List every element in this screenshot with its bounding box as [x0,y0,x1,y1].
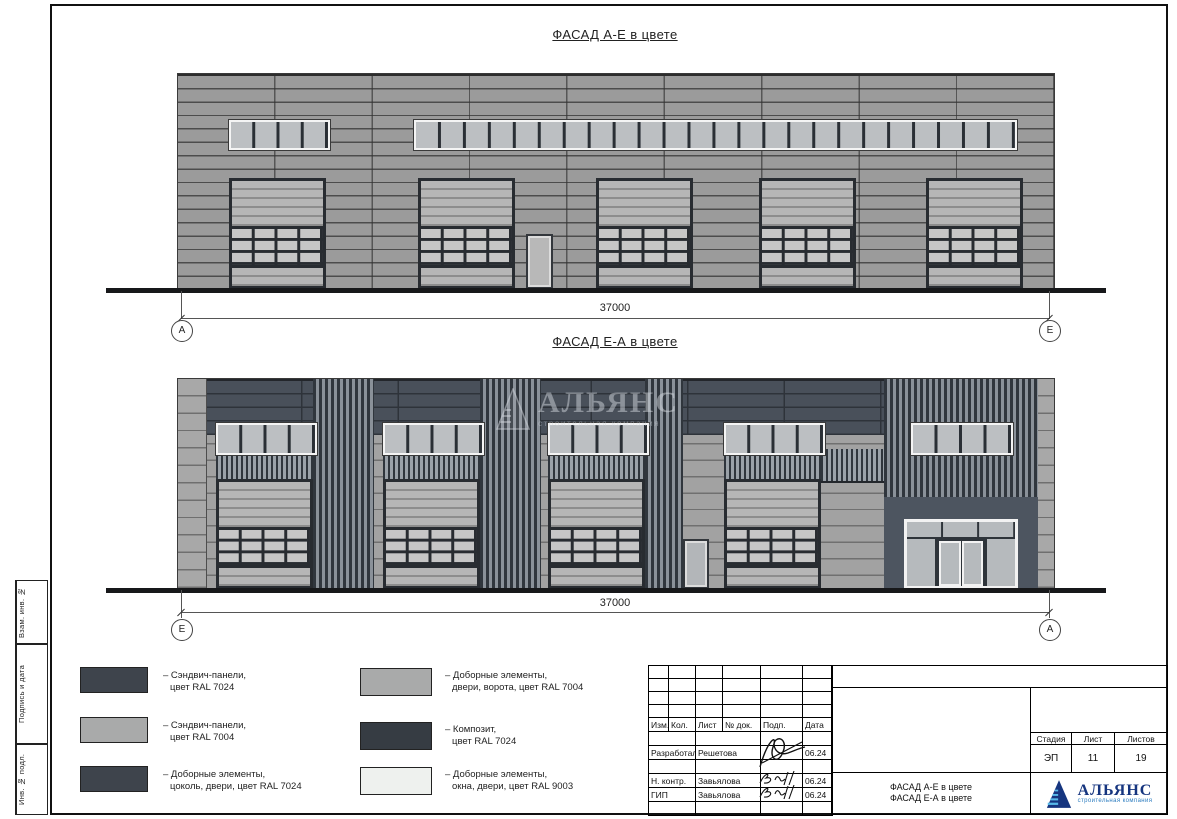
col-kol: Кол. [669,718,696,732]
slat-band [724,451,821,481]
gate-slats [727,482,818,527]
legend-swatch-ral7004 [360,668,432,696]
role-cell: Разработал [649,746,696,760]
main-entrance-surround [884,497,1038,589]
gate-glazing [929,226,1020,268]
window-band [548,423,649,455]
legend-text: цвет RAL 7024 [445,736,516,748]
gate-slats [219,482,310,527]
composite-fin-pylon [313,379,374,589]
legend-text: цвет RAL 7024 [163,682,246,694]
signature-cell [761,788,803,802]
dimension-line [181,318,1049,319]
slat-band [383,451,480,481]
sectional-gate [759,178,856,289]
doc-title-line1: ФАСАД А-Е в цвете [832,782,1030,793]
slat-band [821,449,884,483]
doc-designation-cell [831,687,1031,773]
dimension-line [181,612,1049,613]
legend-label: – Доборные элементы, цоколь, двери, цвет… [163,769,302,793]
side-label: Инв. № подл. [16,745,30,814]
ground-line [106,588,1106,593]
legend-swatch-composite-ral7024 [360,722,432,750]
axis-marker-e: Е [171,619,193,641]
company-logo-cell: АЛЬЯНС строительная компания [1030,772,1168,815]
elevation-bottom-title: ФАСАД Е-А в цвете [177,334,1053,349]
witness-line [181,291,182,319]
legend-label: – Сэндвич-панели, цвет RAL 7024 [163,670,246,694]
sectional-gate [724,479,821,589]
elevation-top-title: ФАСАД А-Е в цвете [177,27,1053,42]
col-ndok: № док. [723,718,761,732]
name-cell: Решетова [696,746,761,760]
window-band [383,423,484,455]
stage-empty-cell [1030,687,1168,733]
gate-slats [929,268,1020,286]
sheet-number-cell: 11 [1071,744,1115,773]
legend-text: цвет RAL 7004 [163,732,246,744]
legend-text: – Композит, [445,724,516,736]
date-cell: 06.24 [803,788,833,802]
legend-text: – Доборные элементы, [445,670,583,682]
side-label: Взам. инв. № [16,581,30,643]
gate-slats [386,482,477,527]
logo-tagline: строительная компания [1078,798,1153,804]
col-list: Лист [696,718,723,732]
doc-title: ФАСАД А-Е в цвете ФАСАД Е-А в цвете [832,782,1030,804]
col-izm: Изм. [649,718,669,732]
dimension-value: 37000 [540,302,690,314]
legend-text: – Доборные элементы, [445,769,573,781]
sectional-gate [216,479,313,589]
gate-slats [219,568,310,586]
door-leaf [962,541,984,586]
legend-text: окна, двери, цвет RAL 9003 [445,781,573,793]
facade-e-a-drawing [177,378,1055,590]
storefront-body [907,539,1015,586]
role-cell: Н. контр. [649,774,696,788]
titleblock-top-cell [831,665,1168,688]
title-block: Изм. Кол. Лист № док. Подп. Дата Разрабо… [648,665,1168,815]
legend-text: – Доборные элементы, [163,769,302,781]
gate-slats [727,568,818,586]
gate-slats [421,181,512,226]
gate-slats [762,268,853,286]
slat-band [548,451,645,481]
axis-marker-a: А [171,320,193,342]
side-cell-vzam-inv: Взам. инв. № [15,580,48,644]
gate-slats [599,181,690,226]
side-cell-inv-podl: Инв. № подл. [15,744,48,815]
sectional-gate [926,178,1023,289]
gate-glazing [727,527,818,568]
signature-cell [761,746,803,760]
legend-label: – Сэндвич-панели, цвет RAL 7004 [163,720,246,744]
witness-line [181,590,182,618]
legend-text: – Сэндвич-панели, [163,670,246,682]
entrance-door [683,539,709,589]
window-band [216,423,317,455]
legend-text: двери, ворота, цвет RAL 7004 [445,682,583,694]
legend-swatch-ral7004 [80,717,148,743]
side-label: Подпись и дата [16,645,30,743]
gate-glazing [551,527,642,568]
gate-glazing [421,226,512,268]
legend-text: – Сэндвич-панели, [163,720,246,732]
window-band [229,120,330,150]
legend-swatch-ral9003 [360,767,432,795]
sectional-gate [548,479,645,589]
ribbon-window-band [414,120,1017,150]
axis-marker-e: Е [1039,320,1061,342]
doc-title-line2: ФАСАД Е-А в цвете [832,793,1030,804]
gate-slats [232,181,323,226]
role-cell: ГИП [649,788,696,802]
storefront-sidelite [907,539,937,586]
dimension-value: 37000 [540,597,690,609]
legend-text: цоколь, двери, цвет RAL 7024 [163,781,302,793]
door-leaf [939,541,961,586]
window-band [911,423,1013,455]
double-entrance-door [937,539,985,586]
witness-line [1049,590,1050,618]
gate-slats [551,482,642,527]
legend-label: – Доборные элементы, двери, ворота, цвет… [445,670,583,694]
gate-slats [762,181,853,226]
gate-glazing [219,527,310,568]
witness-line [1049,291,1050,319]
sectional-gate [229,178,326,289]
date-cell: 06.24 [803,746,833,760]
gate-slats [929,181,1020,226]
pyramid-logo-icon [1046,779,1072,809]
ground-line [106,288,1106,293]
gate-slats [232,268,323,286]
gate-glazing [599,226,690,268]
gate-slats [599,268,690,286]
gate-glazing [386,527,477,568]
gate-slats [386,568,477,586]
facade-a-e-drawing [177,73,1055,290]
gate-glazing [762,226,853,268]
gate-slats [551,568,642,586]
side-cell-podpis-data: Подпись и дата [15,644,48,744]
gate-glazing [232,226,323,268]
signature-cell [761,774,803,788]
legend-swatch-ral7024 [80,766,148,792]
window-band [724,423,825,455]
name-cell: Завьялова [696,774,761,788]
logo-text: АЛЬЯНС строительная компания [1078,783,1153,804]
sheets-total-cell: 19 [1114,744,1168,773]
legend-swatch-ral7024 [80,667,148,693]
corner-panel-strip [1037,379,1054,589]
sectional-gate [596,178,693,289]
col-podp: Подп. [761,718,803,732]
sectional-gate [383,479,480,589]
corner-panel-strip [178,379,207,589]
composite-fin-pylon [480,379,541,589]
doc-title-cell: ФАСАД А-Е в цвете ФАСАД Е-А в цвете [831,772,1031,815]
date-cell: 06.24 [803,774,833,788]
storefront-glazing [904,519,1018,589]
storefront-transom [907,522,1015,539]
gate-slats [421,268,512,286]
composite-fin-pylon [645,379,683,589]
legend-label: – Доборные элементы, окна, двери, цвет R… [445,769,573,793]
entrance-door [526,234,553,289]
col-data: Дата [803,718,833,732]
logo-name: АЛЬЯНС [1078,783,1153,798]
axis-marker-a: А [1039,619,1061,641]
revision-table: Изм. Кол. Лист № док. Подп. Дата Разрабо… [648,665,833,816]
sectional-gate [418,178,515,289]
stage-value-cell: ЭП [1030,744,1072,773]
legend-label: – Композит, цвет RAL 7024 [445,724,516,748]
storefront-sidelite [985,539,1015,586]
name-cell: Завьялова [696,788,761,802]
drawing-sheet: ФАСАД А-Е в цвете ФАСАД Е-А в цвете 3700… [0,0,1177,819]
slat-band [216,451,313,481]
